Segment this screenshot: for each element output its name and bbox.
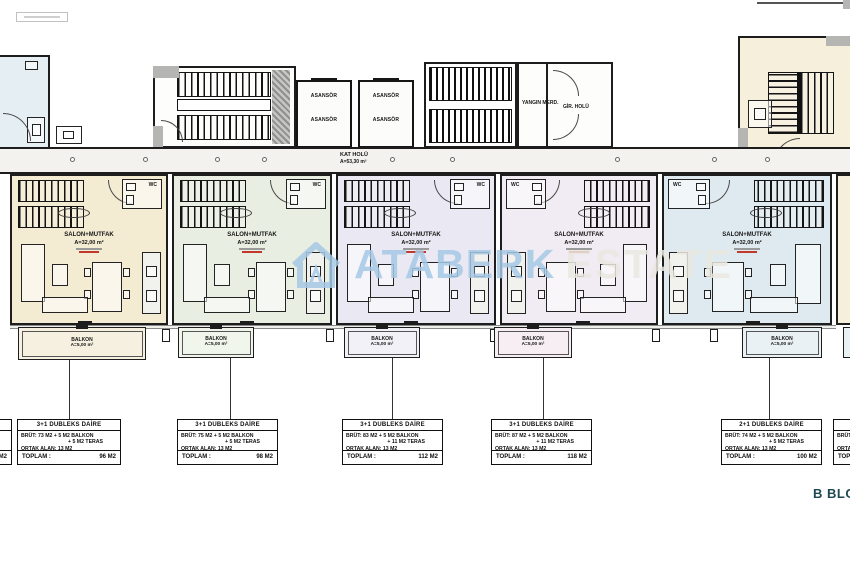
total-value: 98 M2 (256, 454, 273, 460)
top-left-room (0, 55, 50, 149)
room-label: SALON+MUTFAK A=32,00 m² (12, 232, 166, 253)
chair (538, 290, 545, 299)
elevator-label: ASANSÖR (360, 93, 412, 99)
brut-line: BRÜT: 73 M2 + 5 M2 BALKON (21, 433, 117, 440)
room-area: A=32,00 m² (664, 240, 830, 247)
corridor-label: KAT HOLÜ A=53,30 m² (340, 152, 368, 165)
dining-table (712, 262, 744, 312)
unit-type-label: 3+1 DUBLEKS DAİRE (343, 420, 442, 431)
leader-line (230, 358, 231, 419)
balcony-label: BALKON A=5,00 m² (179, 336, 253, 348)
room-area: A=32,00 m² (174, 240, 330, 247)
dining-table (546, 262, 576, 312)
balcony-label: BALKON A=5,00 m² (345, 336, 419, 348)
total-value: 100 M2 (797, 454, 817, 460)
sink (146, 266, 157, 277)
info-box-unit-1: 3+1 DUBLEKS DAİRE BRÜT: 73 M2 + 5 M2 BAL… (17, 419, 121, 465)
chair (287, 268, 294, 277)
info-box-unit-5: 2+1 DUBLEKS DAİRE BRÜT: 74 M2 + 5 M2 BAL… (721, 419, 822, 465)
fine-print-line (403, 248, 429, 250)
toilet (126, 195, 134, 205)
elevator-block: ASANSÖR ASANSÖR ASANSÖR ASANSÖR (296, 80, 414, 148)
unit-spec-lines: BRÜT: 74 M2 + 5 M2 BALKON + 5 M2 TERAS O… (722, 431, 821, 451)
balcony-door-mark (776, 324, 788, 329)
coffee-table (770, 264, 786, 286)
balcony-label: BALKON A=5,00 m² (495, 336, 571, 348)
wall-block (843, 0, 850, 9)
sink (310, 266, 321, 277)
balcony-unit-5: BALKON A=5,00 m² (742, 327, 822, 358)
balcony-label: BALKON A=5,00 m² (743, 336, 821, 348)
chair (451, 268, 458, 277)
stair-badge-oval (220, 208, 252, 218)
wc-label: WC (673, 182, 681, 188)
kitchen-counter (470, 252, 489, 314)
partial-total: M2 (0, 454, 7, 460)
chair (745, 268, 752, 277)
ortak-line: ORTAK (837, 446, 850, 453)
stair-badge-oval (384, 208, 416, 218)
kitchen-counter (142, 252, 161, 314)
sofa-horizontal (750, 297, 798, 313)
corridor-marker-icon (712, 157, 717, 162)
corridor-marker-icon (143, 157, 148, 162)
leader-line (543, 358, 544, 419)
fine-print-line (79, 251, 99, 253)
dining-table (420, 262, 450, 312)
balcony-label: BALKON A=5,00 m² (19, 337, 145, 349)
sink (474, 266, 485, 277)
unit-type-label: 3+1 DUBLEKS DAİRE (178, 420, 277, 431)
duplex-stair-upper (754, 180, 824, 202)
brut-line: BRÜT: (837, 433, 850, 440)
corridor-marker-icon (615, 157, 620, 162)
stair-flight-upper (177, 72, 271, 97)
unit-spec-lines: BRÜT: 73 M2 + 5 M2 BALKON + 5 M2 TERAS O… (18, 431, 120, 451)
wall-line (757, 2, 850, 4)
info-box-partial-left: M2 (0, 419, 12, 465)
fine-print-line (242, 251, 262, 253)
room-name: SALON+MUTFAK (174, 232, 330, 240)
sink (126, 183, 136, 191)
room-name: SALON+MUTFAK (664, 232, 830, 240)
unit-type-label: 2+1 DUBLEKS DAİRE (722, 420, 821, 431)
brut-line: BRÜT: 87 M2 + 5 M2 BALKON (495, 433, 588, 440)
room-label: SALON+MUTFAK A=32,00 m² (174, 232, 330, 253)
balcony-unit-4: BALKON A=5,00 m² (494, 327, 572, 358)
fixture (25, 61, 38, 70)
info-box-unit-4: 3+1 DUBLEKS DAİRE BRÜT: 87 M2 + 5 M2 BAL… (491, 419, 592, 465)
sink (454, 183, 464, 191)
fire-stairs-label: YANGIN MERD. (522, 100, 559, 106)
duplex-stair-upper (180, 180, 246, 202)
corridor-marker-icon (765, 157, 770, 162)
unit-2: WC SALON+MUTFAK A=32,00 m² (172, 174, 332, 325)
fine-print-line (406, 251, 426, 253)
wc-label: WC (511, 182, 519, 188)
stair-winder (272, 70, 290, 144)
balcony-partial-right (843, 327, 850, 358)
total-label: TOPLAM : (726, 454, 755, 460)
total-label: TOPLAM : (22, 454, 51, 460)
fine-print-line (566, 248, 592, 250)
chair (704, 290, 711, 299)
sofa-horizontal (42, 297, 88, 313)
balcony-unit-3: BALKON A=5,00 m² (344, 327, 420, 358)
corridor-marker-icon (450, 157, 455, 162)
wall-block (153, 66, 179, 78)
sink (511, 266, 522, 277)
unit-5: WC SALON+MUTFAK A=32,00 m² (662, 174, 832, 325)
corridor-marker-icon (70, 157, 75, 162)
stair-flight (800, 72, 834, 134)
stair-spine (797, 72, 801, 134)
coffee-table (214, 264, 230, 286)
kitchen-counter (669, 252, 688, 314)
total-label: TOPLAM : (182, 454, 211, 460)
sofa-horizontal (204, 297, 250, 313)
unit-spec-lines: BRÜT: 75 M2 + 5 M2 BALKON + 5 M2 TERAS O… (178, 431, 277, 451)
wc-label: WC (313, 182, 321, 188)
kitchen-counter (507, 252, 526, 314)
unit-3: WC SALON+MUTFAK A=32,00 m² (336, 174, 496, 325)
toilet (698, 195, 706, 205)
elevator-shaft-2: ASANSÖR ASANSÖR (358, 80, 414, 148)
toilet (290, 195, 298, 205)
toilet (454, 195, 462, 205)
wall-stub (162, 329, 170, 342)
room-area: A=32,00 m² (502, 240, 656, 247)
stair-flight-lower (429, 109, 512, 143)
sink (696, 183, 706, 191)
secondary-staircase-block (424, 62, 517, 148)
fine-print-line (734, 248, 760, 250)
balcony-door-mark (376, 324, 388, 329)
interior-wall (546, 64, 548, 146)
room-area: A=32,00 m² (338, 240, 494, 247)
info-box-partial-right: BRÜT: ORTAK TOPLAM (833, 419, 850, 465)
chair (287, 290, 294, 299)
floor-plan-canvas: ASANSÖR ASANSÖR ASANSÖR ASANSÖR YANGIN M… (0, 0, 850, 566)
elevator-label: ASANSÖR (360, 117, 412, 123)
fine-print-line (737, 251, 757, 253)
door-arc (553, 70, 579, 96)
stair-flight-upper (429, 67, 512, 101)
side-table (56, 126, 82, 144)
total-label: TOPLAM (838, 454, 850, 460)
partial-unit-right (836, 174, 850, 325)
fine-print-line (569, 251, 589, 253)
wall-stub (652, 329, 660, 342)
corridor: KAT HOLÜ A=53,30 m² (0, 147, 850, 174)
fine-print-line (76, 248, 102, 250)
elevator-label: ASANSÖR (298, 117, 350, 123)
total-value: 118 M2 (567, 454, 587, 460)
wc-label: WC (149, 182, 157, 188)
info-box-unit-3: 3+1 DUBLEKS DAİRE BRÜT: 83 M2 + 5 M2 BAL… (342, 419, 443, 465)
info-box-unit-2: 3+1 DUBLEKS DAİRE BRÜT: 75 M2 + 5 M2 BAL… (177, 419, 278, 465)
room-name: SALON+MUTFAK (12, 232, 166, 240)
room-label: SALON+MUTFAK A=32,00 m² (338, 232, 494, 253)
total-value: 112 M2 (418, 454, 438, 460)
wall-stub (710, 329, 718, 342)
chair (84, 268, 91, 277)
stair-flight-lower (177, 115, 271, 140)
balcony-door-mark (76, 324, 88, 329)
corridor-marker-icon (262, 157, 267, 162)
sink (290, 183, 300, 191)
teras-line: + 5 M2 TERAS (725, 439, 818, 446)
sofa-horizontal (368, 297, 414, 313)
stove (474, 290, 485, 302)
stair-badge-oval (58, 208, 90, 218)
coffee-table (378, 264, 394, 286)
sofa-vertical (795, 244, 821, 304)
stove (673, 290, 684, 302)
unit-spec-lines: BRÜT: 87 M2 + 5 M2 BALKON + 11 M2 TERAS … (492, 431, 591, 451)
door-arc (553, 114, 579, 140)
stove (511, 290, 522, 302)
wall-stub (326, 329, 334, 342)
total-value: 96 M2 (99, 454, 116, 460)
block-title: B BLOK (813, 486, 850, 501)
unit-4: WC SALON+MUTFAK A=32,00 m² (500, 174, 658, 325)
stair-landing (177, 99, 271, 111)
coffee-table (600, 264, 616, 286)
corridor-marker-icon (390, 157, 395, 162)
chair (412, 268, 419, 277)
stair-flight (768, 72, 798, 134)
duplex-stair-upper (344, 180, 410, 202)
unit-type-label: 3+1 DUBLEKS DAİRE (18, 420, 120, 431)
fixture-inner (32, 124, 41, 136)
unit-spec-lines: BRÜT: 83 M2 + 5 M2 BALKON + 11 M2 TERAS … (343, 431, 442, 451)
side-table-screen (63, 131, 74, 139)
elevator-shaft-1: ASANSÖR ASANSÖR (296, 80, 352, 148)
room-name: SALON+MUTFAK (502, 232, 656, 240)
room-label: SALON+MUTFAK A=32,00 m² (664, 232, 830, 253)
balcony-door-mark (527, 324, 539, 329)
duplex-stair-upper (18, 180, 84, 202)
sink (532, 183, 542, 191)
chair (123, 290, 130, 299)
brut-line: BRÜT: 75 M2 + 5 M2 BALKON (181, 433, 274, 440)
elevator-label: ASANSÖR (298, 93, 350, 99)
chair (538, 268, 545, 277)
brut-line: BRÜT: 74 M2 + 5 M2 BALKON (725, 433, 818, 440)
unit-1: WC SALON+MUTFAK A=32,00 m² (10, 174, 168, 325)
chair (123, 268, 130, 277)
leader-line (392, 358, 393, 419)
coffee-table (52, 264, 68, 286)
stair-badge-oval (578, 208, 610, 218)
teras-line: + 11 M2 TERAS (495, 439, 588, 446)
main-staircase-block (153, 66, 296, 148)
teras-line: + 5 M2 TERAS (181, 439, 274, 446)
balcony-unit-2: BALKON A=5,00 m² (178, 327, 254, 358)
fine-print-line (239, 248, 265, 250)
entrance-hall-label: GİR. HOLÜ (563, 104, 589, 110)
toilet (534, 195, 542, 205)
dimension-line (24, 16, 60, 18)
fixture (754, 108, 766, 120)
balcony-door-mark (210, 324, 222, 329)
brut-line: BRÜT: 83 M2 + 5 M2 BALKON (346, 433, 439, 440)
chair (248, 268, 255, 277)
room-area: A=32,00 m² (12, 240, 166, 247)
teras-line: + 5 M2 TERAS (21, 439, 117, 446)
chair (704, 268, 711, 277)
chair (451, 290, 458, 299)
total-label: TOPLAM : (347, 454, 376, 460)
duplex-stair-upper (584, 180, 650, 202)
elevator-door (373, 78, 399, 82)
elevator-door (311, 78, 337, 82)
leader-line (769, 358, 770, 419)
stair-badge-oval (750, 208, 782, 218)
corridor-marker-icon (215, 157, 220, 162)
kitchen-counter (306, 252, 325, 314)
stove (146, 290, 157, 302)
dining-table (256, 262, 286, 312)
total-label: TOPLAM : (496, 454, 525, 460)
wc-room (748, 100, 772, 128)
unit-type-label: 3+1 DUBLEKS DAİRE (492, 420, 591, 431)
sofa-horizontal (580, 297, 626, 313)
corridor-name: KAT HOLÜ (340, 152, 368, 159)
sink (673, 266, 684, 277)
dining-table (92, 262, 122, 312)
room-label: SALON+MUTFAK A=32,00 m² (502, 232, 656, 253)
teras-line: + 11 M2 TERAS (346, 439, 439, 446)
wc-label: WC (477, 182, 485, 188)
chair (577, 268, 584, 277)
corridor-area: A=53,30 m² (340, 159, 368, 165)
stove (310, 290, 321, 302)
fire-stairs-room: YANGIN MERD. GİR. HOLÜ (517, 62, 613, 148)
balcony-unit-1: BALKON A=5,00 m² (18, 327, 146, 360)
room-name: SALON+MUTFAK (338, 232, 494, 240)
wall-block (826, 36, 850, 46)
leader-line (69, 360, 70, 419)
